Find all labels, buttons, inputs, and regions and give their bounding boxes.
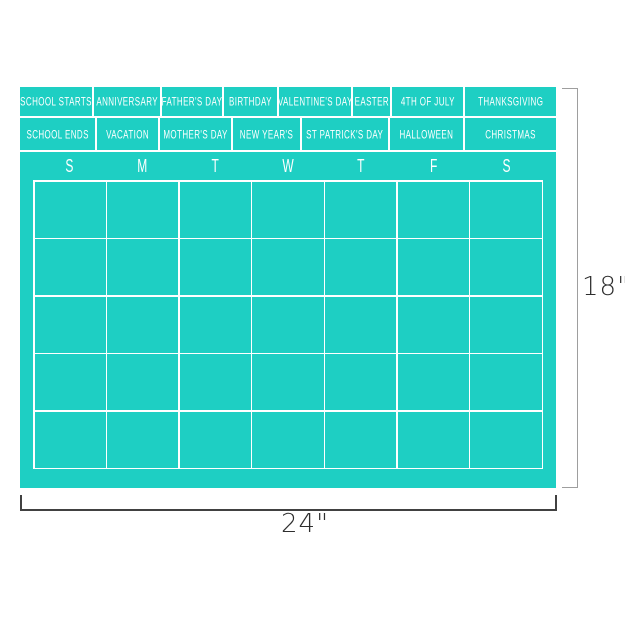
calendar-grid-cell xyxy=(252,297,323,353)
day-header-letter: S xyxy=(65,156,73,177)
calendar-decal: SCHOOL STARTS ANNIVERSARY FATHER'S DAY B… xyxy=(20,87,556,488)
width-dimension-tick-left xyxy=(20,495,22,510)
calendar-grid-cell xyxy=(398,354,469,410)
calendar-grid-cell xyxy=(252,182,323,238)
height-dimension-label: 18" xyxy=(582,272,625,302)
height-dimension-line xyxy=(577,88,578,488)
day-header-letter: T xyxy=(211,156,218,177)
holiday-label-mothers-day: MOTHER'S DAY xyxy=(158,118,231,150)
calendar-grid-cell xyxy=(180,297,251,353)
calendar-grid-cell xyxy=(180,412,251,468)
calendar-grid-cell xyxy=(325,297,396,353)
holiday-label-text: BIRTHDAY xyxy=(229,95,272,109)
day-header-letter: S xyxy=(503,156,511,177)
holiday-label-text: ST PATRICK'S DAY xyxy=(306,127,383,141)
calendar-grid-cell xyxy=(180,182,251,238)
calendar-grid-cell xyxy=(35,412,106,468)
holiday-label-fathers-day: FATHER'S DAY xyxy=(160,87,221,116)
calendar-grid-cell xyxy=(180,239,251,295)
holiday-label-text: EASTER xyxy=(355,95,389,109)
width-dimension-tick-right xyxy=(555,495,557,510)
calendar-grid-cell xyxy=(470,239,541,295)
holiday-label-text: VALENTINE'S DAY xyxy=(278,95,351,109)
holiday-label-text: MOTHER'S DAY xyxy=(163,127,227,141)
calendar-grid-cell xyxy=(35,354,106,410)
calendar-grid-cell xyxy=(252,412,323,468)
holiday-label-thanksgiving: THANKSGIVING xyxy=(463,87,556,116)
holiday-label-valentines-day: VALENTINE'S DAY xyxy=(277,87,351,116)
holiday-label-row-2: SCHOOL ENDS VACATION MOTHER'S DAY NEW YE… xyxy=(20,118,556,152)
calendar-grid-cell xyxy=(252,239,323,295)
calendar-grid-cell xyxy=(35,297,106,353)
holiday-label-text: CHRISTMAS xyxy=(485,127,536,141)
day-header-letter: F xyxy=(430,156,437,177)
holiday-label-vacation: VACATION xyxy=(95,118,158,150)
calendar-grid-cell xyxy=(252,354,323,410)
day-of-week-header: S M T W T F S xyxy=(33,152,543,180)
calendar-grid-cell xyxy=(107,239,178,295)
calendar-grid-cell xyxy=(107,297,178,353)
holiday-label-school-starts: SCHOOL STARTS xyxy=(20,87,92,116)
day-header-thursday: T xyxy=(324,152,397,180)
holiday-label-christmas: CHRISTMAS xyxy=(463,118,556,150)
day-header-letter: W xyxy=(282,156,293,177)
holiday-label-text: THANKSGIVING xyxy=(478,95,543,109)
holiday-label-school-ends: SCHOOL ENDS xyxy=(20,118,95,150)
calendar-grid-cell xyxy=(470,182,541,238)
holiday-label-text: SCHOOL ENDS xyxy=(26,127,88,141)
calendar-grid-cell xyxy=(398,297,469,353)
holiday-label-text: HALLOWEEN xyxy=(400,127,454,141)
day-header-sunday: S xyxy=(33,152,106,180)
day-header-letter: T xyxy=(357,156,364,177)
calendar-grid-cell xyxy=(398,239,469,295)
calendar-grid-cell xyxy=(398,412,469,468)
day-header-wednesday: W xyxy=(252,152,325,180)
calendar-grid-cell xyxy=(325,239,396,295)
holiday-label-text: 4TH OF JULY xyxy=(401,95,455,109)
height-dimension-tick-bottom xyxy=(562,487,578,488)
holiday-label-new-years: NEW YEAR'S xyxy=(231,118,299,150)
holiday-label-text: VACATION xyxy=(106,127,149,141)
holiday-label-easter: EASTER xyxy=(351,87,390,116)
calendar-grid-cell xyxy=(325,354,396,410)
calendar-grid-cell xyxy=(107,412,178,468)
calendar-grid-cell xyxy=(35,182,106,238)
day-header-letter: M xyxy=(137,156,147,177)
holiday-label-st-patricks-day: ST PATRICK'S DAY xyxy=(300,118,388,150)
width-dimension-label: 24" xyxy=(281,509,329,539)
calendar-grid-cell xyxy=(325,182,396,238)
height-dimension-tick-top xyxy=(562,88,578,89)
calendar-grid-cell xyxy=(180,354,251,410)
month-grid xyxy=(33,180,543,469)
calendar-grid-cell xyxy=(107,354,178,410)
calendar-grid-cell xyxy=(470,412,541,468)
product-diagram: SCHOOL STARTS ANNIVERSARY FATHER'S DAY B… xyxy=(0,0,625,625)
holiday-label-halloween: HALLOWEEN xyxy=(388,118,463,150)
calendar-grid-cell xyxy=(398,182,469,238)
holiday-label-text: ANNIVERSARY xyxy=(96,95,158,109)
holiday-label-anniversary: ANNIVERSARY xyxy=(92,87,160,116)
holiday-label-4th-of-july: 4TH OF JULY xyxy=(390,87,463,116)
holiday-label-text: NEW YEAR'S xyxy=(240,127,293,141)
holiday-label-text: SCHOOL STARTS xyxy=(20,95,92,109)
calendar-grid-cell xyxy=(470,354,541,410)
calendar-grid-cell xyxy=(325,412,396,468)
day-header-saturday: S xyxy=(470,152,543,180)
day-header-tuesday: T xyxy=(179,152,252,180)
calendar-grid-cell xyxy=(35,239,106,295)
calendar-grid-cell xyxy=(107,182,178,238)
holiday-label-text: FATHER'S DAY xyxy=(162,95,222,109)
holiday-label-birthday: BIRTHDAY xyxy=(222,87,278,116)
calendar-grid-cell xyxy=(470,297,541,353)
day-header-friday: F xyxy=(397,152,470,180)
day-header-monday: M xyxy=(106,152,179,180)
holiday-label-row-1: SCHOOL STARTS ANNIVERSARY FATHER'S DAY B… xyxy=(20,87,556,118)
